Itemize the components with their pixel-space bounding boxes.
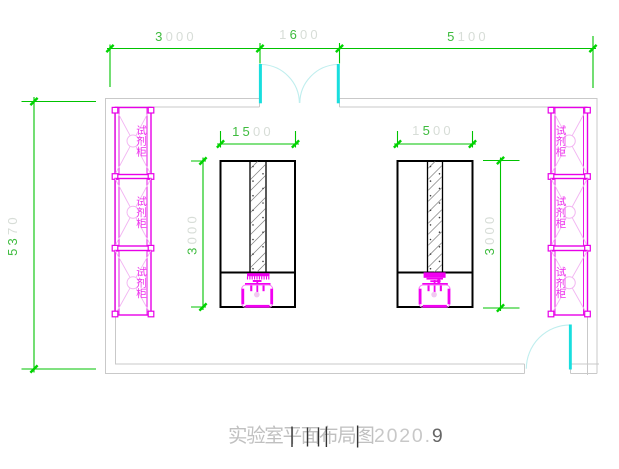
svg-text:柜: 柜	[136, 217, 147, 230]
svg-text:柜: 柜	[136, 146, 147, 159]
svg-text:5100: 5100	[447, 29, 489, 44]
svg-text:1500: 1500	[232, 124, 274, 139]
svg-text:1500: 1500	[412, 123, 454, 138]
svg-text:柜: 柜	[556, 146, 567, 159]
svg-text:柜: 柜	[136, 287, 147, 300]
svg-text:实验室平面布局图: 实验室平面布局图	[228, 425, 374, 447]
svg-text:柜: 柜	[556, 287, 567, 300]
svg-text:柜: 柜	[556, 217, 567, 230]
svg-text:5370: 5370	[5, 214, 20, 256]
svg-text:1600: 1600	[279, 27, 321, 42]
svg-text:3000: 3000	[185, 213, 200, 255]
svg-text:2020.9: 2020.9	[374, 425, 444, 447]
svg-text:3000: 3000	[155, 29, 197, 44]
svg-text:3000: 3000	[482, 214, 497, 256]
